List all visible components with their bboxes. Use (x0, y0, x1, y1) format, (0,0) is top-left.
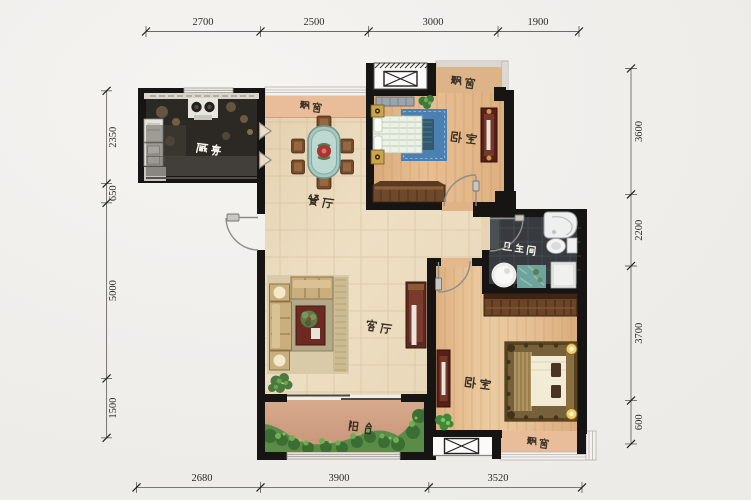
svg-text:3900: 3900 (329, 473, 350, 484)
svg-text:3700: 3700 (634, 323, 645, 344)
svg-text:1900: 1900 (528, 17, 549, 28)
svg-text:650: 650 (108, 185, 119, 201)
svg-text:5000: 5000 (108, 280, 119, 301)
svg-text:1500: 1500 (108, 398, 119, 419)
svg-text:2500: 2500 (304, 17, 325, 28)
svg-text:2700: 2700 (193, 17, 214, 28)
svg-text:2350: 2350 (108, 127, 119, 148)
svg-text:2200: 2200 (634, 220, 645, 241)
svg-text:3000: 3000 (423, 17, 444, 28)
svg-text:3600: 3600 (634, 121, 645, 142)
svg-text:3520: 3520 (488, 473, 509, 484)
svg-text:600: 600 (634, 414, 645, 430)
svg-text:2680: 2680 (192, 473, 213, 484)
